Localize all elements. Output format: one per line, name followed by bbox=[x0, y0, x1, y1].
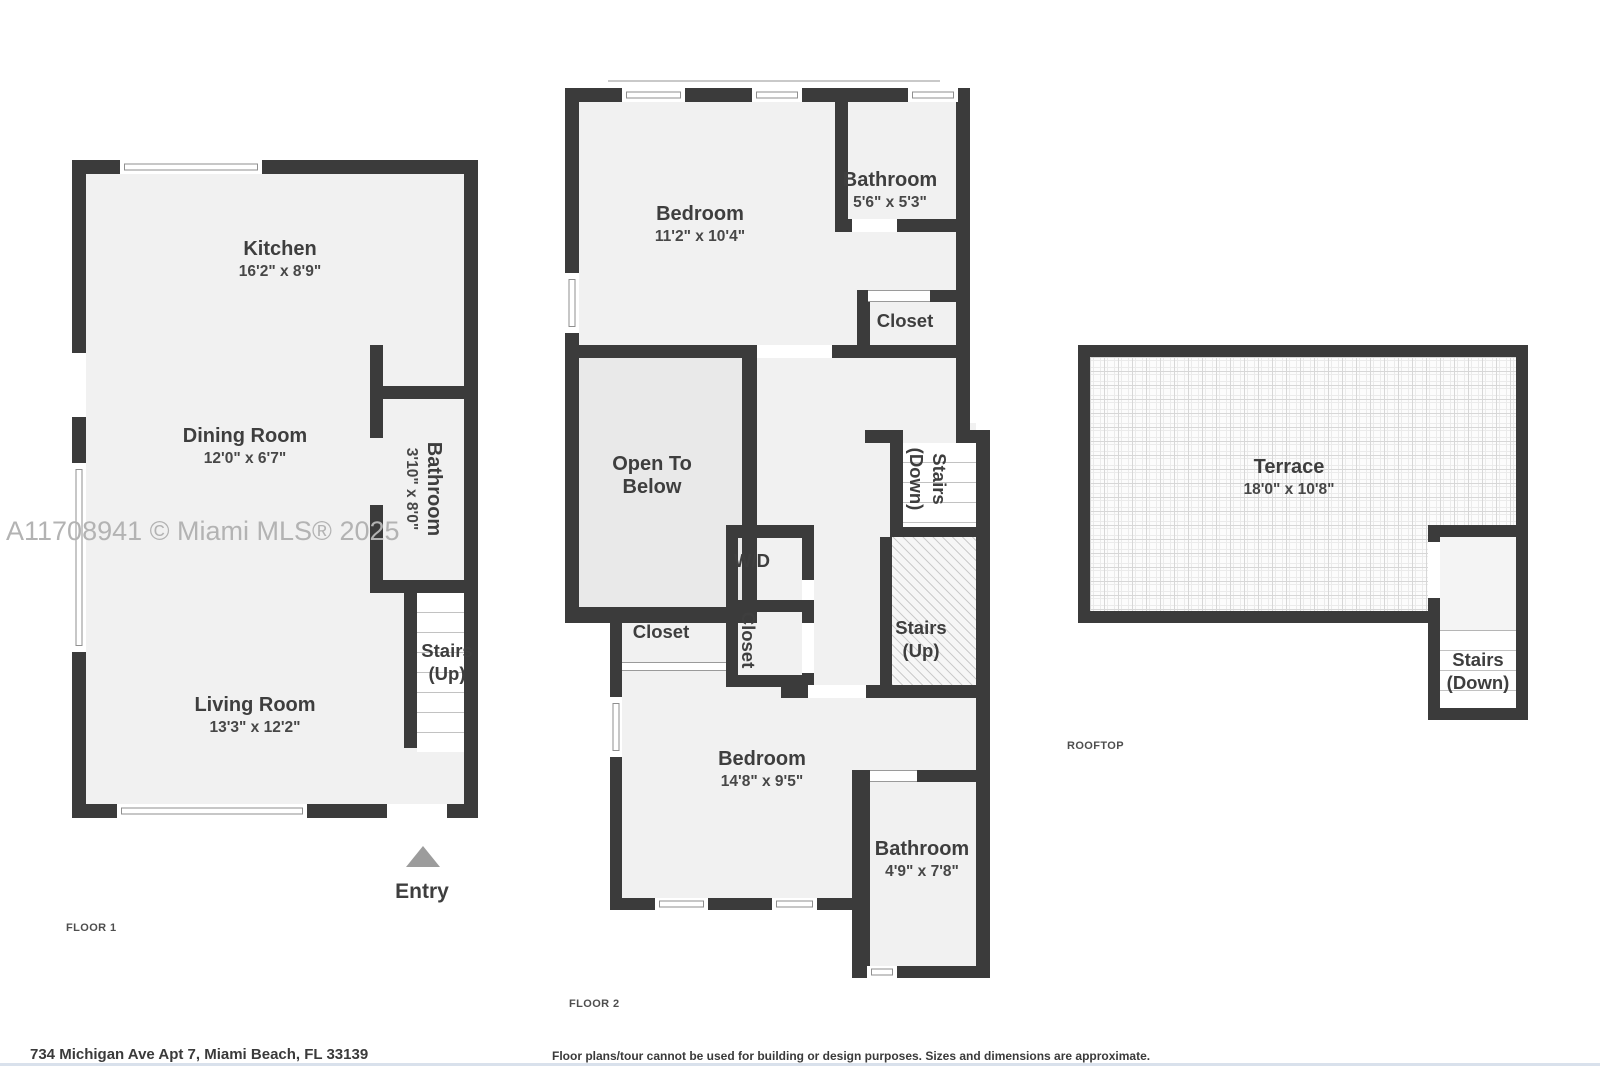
room-name: Dining Room bbox=[183, 425, 307, 448]
stairs-line2: (Up) bbox=[903, 639, 940, 662]
door-opening bbox=[622, 662, 726, 671]
window bbox=[565, 273, 579, 333]
wall bbox=[1428, 708, 1528, 720]
room-dims: 16'2" x 8'9" bbox=[239, 263, 321, 282]
room-label-stairs-up-f1: Stairs (Up) bbox=[387, 636, 507, 688]
window bbox=[655, 898, 708, 910]
room-label-living: Living Room 13'3" x 12'2" bbox=[135, 690, 375, 742]
room-label-stairs-up-f2: Stairs (Up) bbox=[871, 614, 971, 664]
room-dims: 4'9" x 7'8" bbox=[885, 863, 959, 882]
wall bbox=[370, 580, 464, 593]
entry-opening bbox=[387, 804, 447, 818]
window bbox=[772, 898, 817, 910]
room-name: Bathroom bbox=[875, 838, 969, 861]
floorplan-canvas: A11708941 © Miami MLS® 2025 Kitchen 16'2… bbox=[0, 0, 1600, 1066]
room-label-closet-mid: Closet bbox=[601, 620, 721, 644]
property-address: 734 Michigan Ave Apt 7, Miami Beach, FL … bbox=[30, 1046, 368, 1063]
room-dims: 12'0" x 6'7" bbox=[204, 450, 286, 469]
room-name: W/D bbox=[734, 549, 770, 572]
window bbox=[908, 88, 958, 102]
stairs-line2: (Down) bbox=[1447, 671, 1510, 694]
wall bbox=[742, 358, 757, 612]
room-dims: 18'0" x 10'8" bbox=[1243, 481, 1334, 500]
room-dims: 13'3" x 12'2" bbox=[209, 719, 300, 738]
room-name: Bedroom bbox=[718, 748, 806, 771]
entry-label: Entry bbox=[362, 879, 482, 905]
wall bbox=[1078, 345, 1528, 357]
section-label-floor1: FLOOR 1 bbox=[66, 922, 116, 934]
stairs-line2: (Down) bbox=[905, 448, 928, 511]
otb-line2: Below bbox=[623, 476, 682, 499]
room-dims: 3'10" x 8'0" bbox=[401, 448, 420, 530]
stairs-line1: Stairs bbox=[1452, 648, 1503, 671]
room-label-closet-top: Closet bbox=[845, 309, 965, 333]
wall bbox=[956, 88, 970, 443]
room-label-bathroom-top: Bathroom 5'6" x 5'3" bbox=[810, 167, 970, 215]
wall bbox=[726, 525, 814, 538]
wall bbox=[832, 345, 970, 358]
window bbox=[752, 88, 802, 102]
room-label-stairs-down-roof: Stairs (Down) bbox=[1418, 646, 1538, 696]
otb-line1: Open To bbox=[612, 453, 692, 476]
room-label-closet-small: Closet bbox=[736, 600, 760, 680]
room-label-stairs-down-f2: Stairs (Down) bbox=[905, 421, 951, 537]
window bbox=[622, 88, 685, 102]
wall bbox=[1428, 525, 1528, 537]
stairs-line1: Stairs bbox=[928, 453, 951, 504]
wall bbox=[1078, 345, 1090, 623]
room-dims: 11'2" x 10'4" bbox=[655, 228, 745, 247]
door-opening bbox=[802, 623, 814, 673]
room-name: Closet bbox=[736, 612, 759, 669]
wall bbox=[866, 685, 990, 698]
disclaimer-text: Floor plans/tour cannot be used for buil… bbox=[552, 1049, 1150, 1063]
overhang-line bbox=[608, 80, 940, 82]
window bbox=[867, 966, 897, 978]
window bbox=[72, 463, 86, 652]
door-opening bbox=[370, 438, 383, 505]
room-name: Kitchen bbox=[243, 238, 316, 261]
door-opening bbox=[1428, 542, 1440, 598]
door-opening bbox=[802, 580, 814, 600]
wall-opening bbox=[72, 353, 86, 417]
room-dims: 14'8" x 9'5" bbox=[721, 773, 803, 792]
room-label-bedroom-bottom: Bedroom 14'8" x 9'5" bbox=[642, 744, 882, 796]
room-label-bedroom-top: Bedroom 11'2" x 10'4" bbox=[580, 199, 820, 251]
section-label-floor2: FLOOR 2 bbox=[569, 998, 619, 1010]
window bbox=[120, 160, 262, 174]
section-label-rooftop: ROOFTOP bbox=[1067, 740, 1124, 752]
door-opening bbox=[868, 290, 930, 302]
stairs-line1: Stairs bbox=[421, 639, 472, 662]
stairs-line1: Stairs bbox=[895, 616, 946, 639]
room-label-dining: Dining Room 12'0" x 6'7" bbox=[125, 421, 365, 473]
room-name: Bedroom bbox=[656, 203, 744, 226]
door-opening bbox=[808, 685, 866, 698]
wall bbox=[370, 386, 464, 399]
entry-text: Entry bbox=[395, 880, 449, 904]
room-name: Bathroom bbox=[843, 169, 937, 192]
stairs-line2: (Up) bbox=[429, 662, 466, 685]
room-label-open-to-below: Open To Below bbox=[572, 449, 732, 503]
room-name: Closet bbox=[877, 309, 934, 332]
wall bbox=[976, 430, 990, 978]
room-label-bathroom-f1: Bathroom 3'10" x 8'0" bbox=[401, 409, 445, 569]
room-label-wd: W/D bbox=[712, 549, 792, 573]
wall bbox=[1078, 611, 1440, 623]
window bbox=[610, 697, 622, 757]
wall bbox=[781, 685, 808, 698]
room-name: Terrace bbox=[1254, 456, 1325, 479]
room-label-terrace: Terrace 18'0" x 10'8" bbox=[1169, 452, 1409, 504]
door-opening bbox=[852, 219, 897, 232]
door-opening bbox=[757, 345, 832, 358]
room-label-bathroom-bottom: Bathroom 4'9" x 7'8" bbox=[837, 834, 1007, 886]
room-name: Closet bbox=[633, 620, 690, 643]
room-label-kitchen: Kitchen 16'2" x 8'9" bbox=[160, 234, 400, 286]
room-name: Living Room bbox=[194, 694, 315, 717]
wall bbox=[610, 620, 622, 910]
wall bbox=[464, 160, 478, 818]
window bbox=[117, 804, 307, 818]
mls-watermark: A11708941 © Miami MLS® 2025 bbox=[6, 516, 400, 547]
room-dims: 5'6" x 5'3" bbox=[853, 194, 927, 213]
entry-arrow-icon bbox=[406, 846, 440, 867]
wall bbox=[890, 430, 903, 537]
wall bbox=[565, 345, 757, 358]
room-name: Bathroom bbox=[422, 442, 445, 536]
